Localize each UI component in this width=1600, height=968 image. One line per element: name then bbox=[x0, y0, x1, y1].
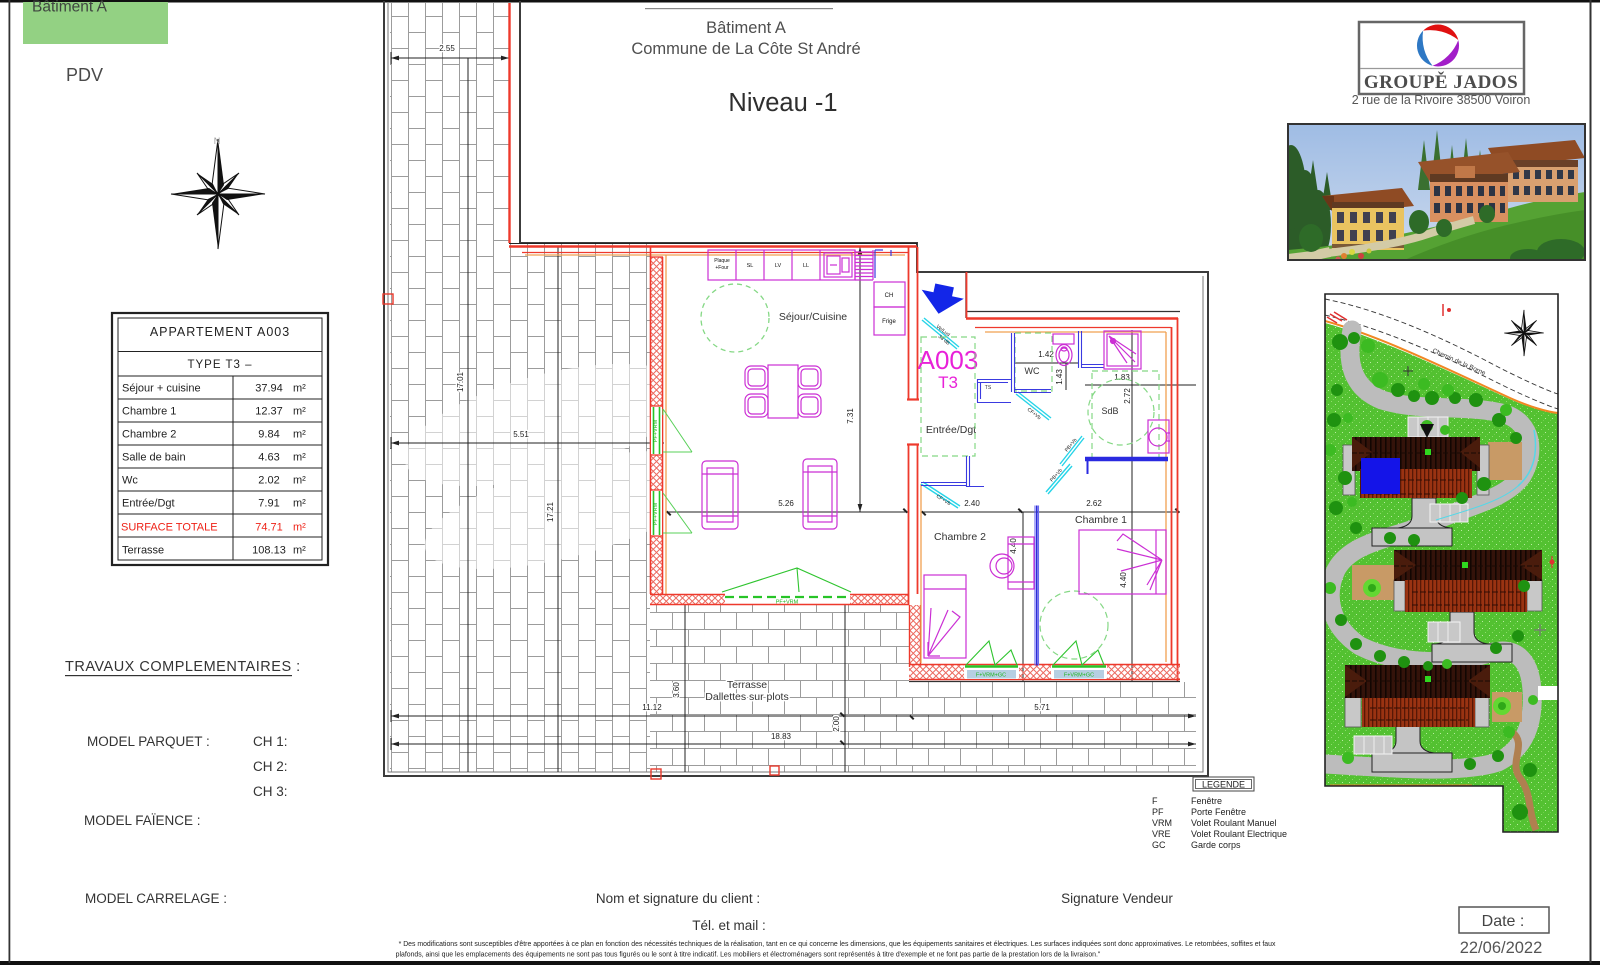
svg-text:2.72: 2.72 bbox=[1123, 388, 1132, 404]
svg-text:Entrée/Dgt: Entrée/Dgt bbox=[926, 424, 976, 436]
svg-text:Niveau -1: Niveau -1 bbox=[728, 89, 837, 117]
svg-text:m²: m² bbox=[293, 475, 306, 487]
svg-text:VRE: VRE bbox=[1152, 829, 1171, 839]
svg-text:m²: m² bbox=[293, 522, 306, 534]
svg-text:TYPE T3 –: TYPE T3 – bbox=[187, 359, 252, 371]
svg-text:18.83: 18.83 bbox=[771, 732, 792, 741]
svg-text:Garde corps: Garde corps bbox=[1191, 840, 1241, 850]
svg-text:Signature Vendeur: Signature Vendeur bbox=[1061, 891, 1173, 906]
svg-text:PF+VRM: PF+VRM bbox=[653, 419, 659, 442]
svg-text:CH: CH bbox=[885, 293, 894, 299]
svg-text:MODEL PARQUET :: MODEL PARQUET : bbox=[87, 734, 210, 749]
svg-text:11.12: 11.12 bbox=[642, 703, 662, 712]
svg-text:CH 1:: CH 1: bbox=[253, 734, 288, 749]
svg-text:m²: m² bbox=[293, 383, 306, 395]
svg-text:Séjour + cuisine: Séjour + cuisine bbox=[122, 383, 201, 395]
svg-text:17.01: 17.01 bbox=[456, 371, 465, 392]
svg-text:* Des modifications sont susce: * Des modifications sont susceptibles d'… bbox=[399, 941, 1276, 948]
svg-text:Chambre 2: Chambre 2 bbox=[934, 531, 986, 543]
svg-text:A003: A003 bbox=[918, 345, 979, 375]
svg-text:TS: TS bbox=[985, 385, 992, 391]
svg-text:22/06/2022: 22/06/2022 bbox=[1460, 939, 1543, 957]
svg-text:MODEL FAÏENCE :: MODEL FAÏENCE : bbox=[84, 813, 201, 828]
svg-text:APPARTEMENT A003: APPARTEMENT A003 bbox=[150, 325, 290, 339]
svg-text:Plaque: Plaque bbox=[714, 258, 730, 264]
svg-text:+Four: +Four bbox=[715, 265, 729, 271]
svg-text:m²: m² bbox=[293, 406, 306, 418]
svg-text:PDV: PDV bbox=[66, 65, 103, 85]
svg-text:LV: LV bbox=[775, 263, 782, 269]
svg-text:7.31: 7.31 bbox=[846, 408, 855, 424]
svg-text:74.71: 74.71 bbox=[255, 522, 283, 534]
svg-text:Chambre 2: Chambre 2 bbox=[122, 429, 176, 441]
svg-text:7.91: 7.91 bbox=[258, 498, 279, 510]
svg-text:SdB: SdB bbox=[1101, 406, 1118, 416]
svg-text:F+VRM+GC: F+VRM+GC bbox=[976, 673, 1006, 679]
svg-text:4.40: 4.40 bbox=[1009, 538, 1018, 554]
svg-text:GC: GC bbox=[1152, 840, 1166, 850]
svg-text:CH 3:: CH 3: bbox=[253, 784, 288, 799]
svg-text:2.62: 2.62 bbox=[1086, 499, 1102, 508]
svg-text:TRAVAUX COMPLEMENTAIRES :: TRAVAUX COMPLEMENTAIRES : bbox=[65, 659, 301, 675]
svg-text:5.26: 5.26 bbox=[778, 499, 794, 508]
svg-text:12.37: 12.37 bbox=[255, 406, 283, 418]
svg-text:m²: m² bbox=[293, 452, 306, 464]
svg-text:Frige: Frige bbox=[882, 319, 896, 325]
svg-text:Chambre 1: Chambre 1 bbox=[1075, 514, 1127, 526]
svg-text:Bâtiment A: Bâtiment A bbox=[32, 0, 108, 16]
svg-text:PF: PF bbox=[1152, 807, 1164, 817]
svg-text:PF+VRM: PF+VRM bbox=[776, 600, 799, 606]
svg-text:m²: m² bbox=[293, 498, 306, 510]
svg-text:1.83: 1.83 bbox=[1114, 373, 1130, 382]
svg-text:m²: m² bbox=[293, 429, 306, 441]
svg-text:Nom et signature du client :: Nom et signature du client : bbox=[596, 891, 760, 906]
svg-text:MODEL CARRELAGE :: MODEL CARRELAGE : bbox=[85, 891, 227, 906]
svg-text:Date :: Date : bbox=[1482, 913, 1525, 930]
svg-text:Dallettes sur plots: Dallettes sur plots bbox=[705, 691, 788, 703]
svg-text:Volet Roulant Electrique: Volet Roulant Electrique bbox=[1191, 829, 1287, 839]
svg-text:2.40: 2.40 bbox=[964, 499, 980, 508]
svg-text:5.71: 5.71 bbox=[1034, 703, 1050, 712]
svg-text:2.55: 2.55 bbox=[439, 44, 455, 53]
svg-text:3.60: 3.60 bbox=[672, 682, 681, 698]
svg-text:LEGENDE: LEGENDE bbox=[1202, 780, 1245, 790]
svg-text:VRM: VRM bbox=[1152, 818, 1172, 828]
svg-text:PB+Vb: PB+Vb bbox=[1064, 437, 1079, 453]
svg-text:m²: m² bbox=[293, 545, 306, 557]
svg-text:1.43: 1.43 bbox=[1055, 369, 1064, 385]
svg-text:CH 2:: CH 2: bbox=[253, 759, 288, 774]
svg-text:Séjour/Cuisine: Séjour/Cuisine bbox=[779, 311, 847, 323]
svg-text:Porte Fenêtre: Porte Fenêtre bbox=[1191, 807, 1246, 817]
svg-text:F+VRM+GC: F+VRM+GC bbox=[1064, 673, 1094, 679]
svg-text:37.94: 37.94 bbox=[255, 383, 283, 395]
svg-text:LL: LL bbox=[803, 263, 809, 269]
svg-text:Fenêtre: Fenêtre bbox=[1191, 796, 1222, 806]
svg-text:Bâtiment A: Bâtiment A bbox=[706, 19, 786, 37]
svg-text:Wc: Wc bbox=[122, 475, 138, 487]
svg-text:Volet Roulant Manuel: Volet Roulant Manuel bbox=[1191, 818, 1277, 828]
svg-text:PF+VRM: PF+VRM bbox=[653, 502, 659, 525]
svg-text:2.02: 2.02 bbox=[258, 475, 279, 487]
svg-text:2 rue de la Rivoire 38500 Voi: 2 rue de la Rivoire 38500 Voiron bbox=[1352, 93, 1531, 107]
svg-text:Commune de La Côte St André: Commune de La Côte St André bbox=[631, 40, 860, 58]
svg-text:108.13: 108.13 bbox=[252, 545, 286, 557]
svg-text:F: F bbox=[1152, 796, 1158, 806]
svg-text:4.40: 4.40 bbox=[1119, 572, 1128, 588]
svg-text:Chambre 1: Chambre 1 bbox=[122, 406, 176, 418]
svg-text:SURFACE TOTALE: SURFACE TOTALE bbox=[121, 522, 218, 534]
svg-text:4.63: 4.63 bbox=[258, 452, 279, 464]
svg-text:2.00: 2.00 bbox=[832, 716, 841, 732]
svg-text:plafonds, ainsi que les emplac: plafonds, ainsi que les emplacements des… bbox=[396, 952, 1101, 959]
svg-text:9.84: 9.84 bbox=[258, 429, 279, 441]
svg-text:17.21: 17.21 bbox=[546, 501, 555, 522]
svg-text:T3: T3 bbox=[938, 373, 958, 392]
svg-text:Terrasse: Terrasse bbox=[727, 679, 767, 691]
svg-text:Tél. et mail :: Tél. et mail : bbox=[692, 918, 766, 933]
svg-text:Entrée/Dgt: Entrée/Dgt bbox=[122, 498, 175, 510]
svg-text:GROUPĚ JADOS: GROUPĚ JADOS bbox=[1364, 71, 1518, 93]
svg-text:WC: WC bbox=[1025, 366, 1040, 376]
svg-text:SL: SL bbox=[747, 263, 754, 269]
svg-text:Salle de bain: Salle de bain bbox=[122, 452, 186, 464]
svg-text:PB+Vb: PB+Vb bbox=[1049, 467, 1064, 483]
svg-text:Terrasse: Terrasse bbox=[122, 545, 164, 557]
svg-text:N: N bbox=[214, 136, 221, 146]
svg-text:5.51: 5.51 bbox=[513, 430, 529, 439]
